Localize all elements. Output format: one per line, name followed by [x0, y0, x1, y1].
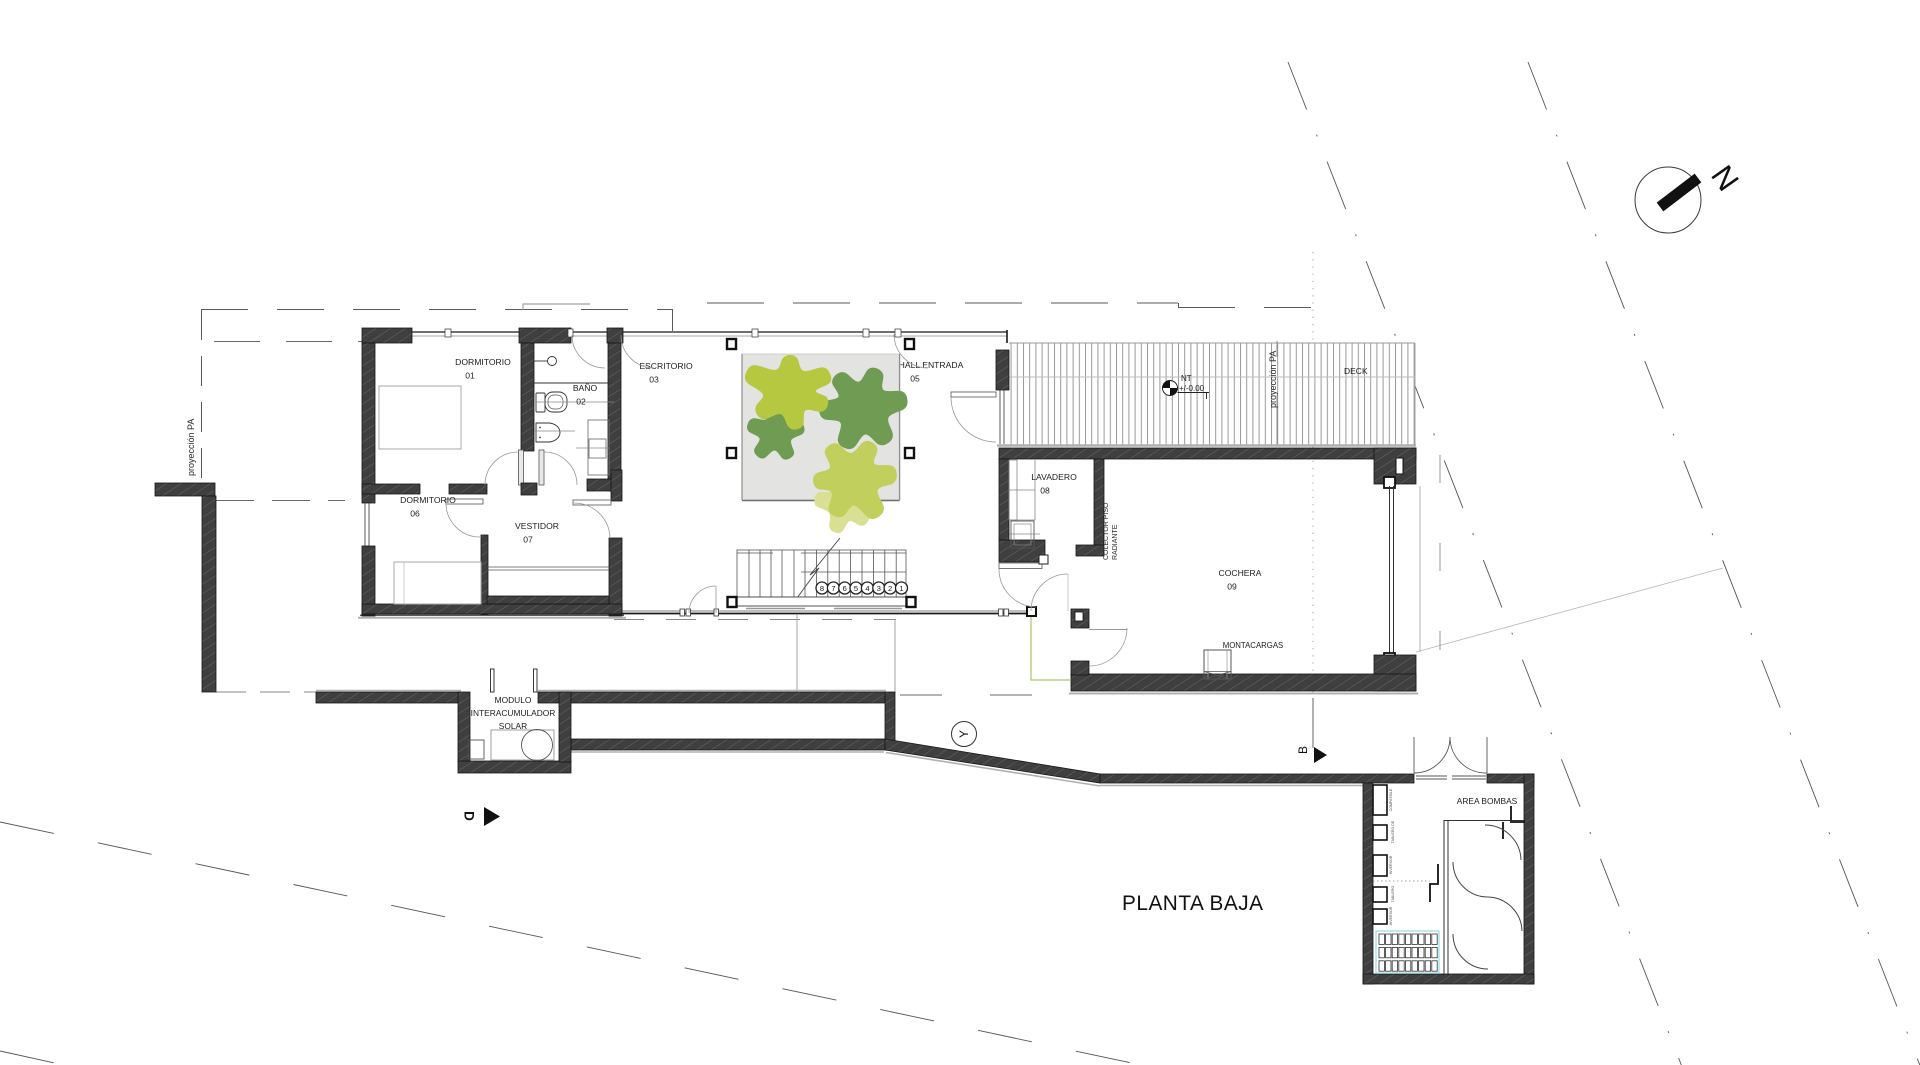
svg-text:AREA BOMBAS: AREA BOMBAS — [1457, 796, 1518, 806]
svg-text:proyección PA: proyección PA — [186, 419, 196, 476]
svg-text:VESTIDOR: VESTIDOR — [515, 521, 559, 531]
svg-text:SOLAR: SOLAR — [499, 721, 527, 731]
svg-text:03: 03 — [649, 375, 659, 385]
svg-text:5: 5 — [854, 584, 858, 593]
svg-text:N: N — [1704, 159, 1746, 197]
svg-text:02: 02 — [576, 397, 586, 407]
svg-text:4: 4 — [865, 584, 869, 593]
svg-text:1: 1 — [899, 584, 903, 593]
svg-text:05: 05 — [910, 374, 920, 384]
svg-text:3: 3 — [877, 584, 881, 593]
svg-text:01: 01 — [465, 371, 475, 381]
svg-text:+/-0.00: +/-0.00 — [1179, 384, 1205, 393]
svg-text:BAÑO: BAÑO — [573, 383, 598, 393]
svg-text:proyección PA: proyección PA — [1268, 351, 1278, 408]
svg-text:8: 8 — [820, 584, 824, 593]
svg-text:MODULO: MODULO — [495, 695, 532, 705]
svg-text:TABLERO DE: TABLERO DE — [1391, 820, 1395, 843]
svg-text:INVERSOR: INVERSOR — [1389, 855, 1393, 874]
svg-text:COLECTOR PISO: COLECTOR PISO — [1103, 502, 1110, 560]
svg-text:09: 09 — [1227, 582, 1237, 592]
svg-text:2: 2 — [888, 584, 892, 593]
svg-text:LAVADERO: LAVADERO — [1031, 472, 1077, 482]
svg-text:B: B — [1296, 746, 1310, 754]
svg-text:TABLERO: TABLERO — [1391, 886, 1395, 903]
svg-text:COMPATIBLE: COMPATIBLE — [1389, 788, 1393, 811]
svg-text:7: 7 — [831, 584, 835, 593]
svg-text:DORMITORIO: DORMITORIO — [455, 357, 511, 367]
svg-text:07: 07 — [523, 535, 533, 545]
svg-text:06: 06 — [410, 509, 420, 519]
svg-text:COCHERA: COCHERA — [1219, 568, 1262, 578]
svg-text:D: D — [462, 811, 477, 821]
svg-text:DORMITORIO: DORMITORIO — [400, 495, 456, 505]
svg-text:PLANTA BAJA: PLANTA BAJA — [1122, 892, 1264, 915]
svg-text:INVERSOR: INVERSOR — [1389, 906, 1393, 925]
svg-text:NT: NT — [1181, 374, 1192, 383]
svg-text:6: 6 — [843, 584, 847, 593]
svg-text:INTERACUMULADOR: INTERACUMULADOR — [471, 708, 556, 718]
svg-text:DECK: DECK — [1344, 366, 1368, 376]
svg-text:MONTACARGAS: MONTACARGAS — [1223, 641, 1284, 650]
svg-text:ESCRITORIO: ESCRITORIO — [639, 361, 693, 371]
svg-text:RADIANTE: RADIANTE — [1112, 524, 1119, 560]
svg-text:08: 08 — [1040, 486, 1050, 496]
svg-text:Y: Y — [957, 730, 971, 738]
